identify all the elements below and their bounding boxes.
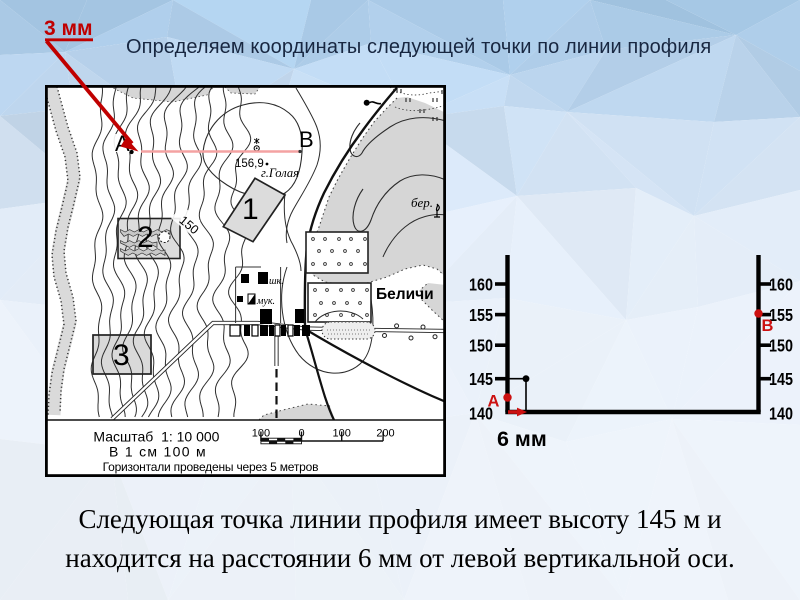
- svg-text:150: 150: [469, 336, 493, 356]
- svg-text:150: 150: [769, 336, 793, 356]
- svg-text:155: 155: [469, 305, 493, 325]
- svg-text:140: 140: [769, 403, 793, 423]
- svg-text:145: 145: [769, 369, 793, 389]
- svg-text:145: 145: [469, 369, 493, 389]
- svg-text:В: В: [762, 317, 774, 335]
- svg-text:160: 160: [469, 274, 493, 294]
- svg-text:А: А: [488, 393, 500, 411]
- svg-text:160: 160: [769, 274, 793, 294]
